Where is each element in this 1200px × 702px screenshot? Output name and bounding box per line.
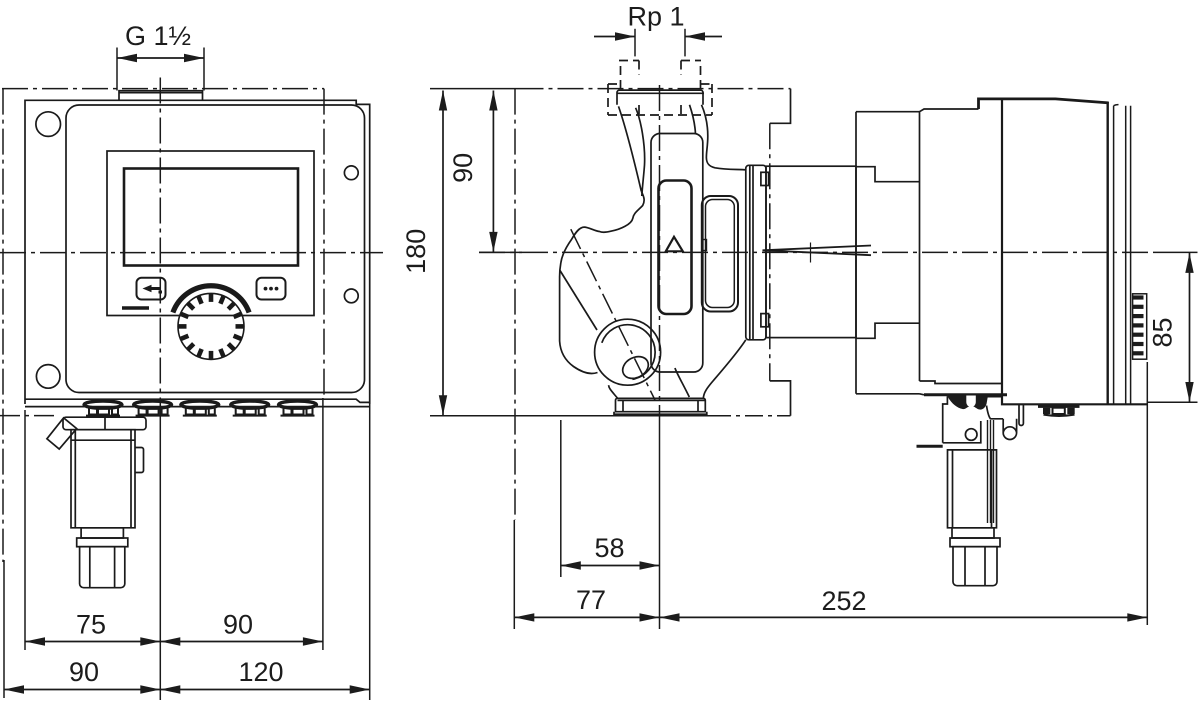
svg-text:75: 75 <box>76 610 106 640</box>
svg-text:252: 252 <box>821 586 866 616</box>
svg-text:90: 90 <box>69 657 99 687</box>
svg-text:G 1½: G 1½ <box>125 21 191 51</box>
svg-text:90: 90 <box>223 610 253 640</box>
svg-text:180: 180 <box>401 229 431 274</box>
svg-text:Rp 1: Rp 1 <box>627 2 684 32</box>
svg-text:120: 120 <box>238 657 283 687</box>
svg-text:90: 90 <box>448 153 478 183</box>
svg-text:58: 58 <box>594 533 624 563</box>
svg-text:85: 85 <box>1148 317 1178 347</box>
svg-text:77: 77 <box>576 585 606 615</box>
